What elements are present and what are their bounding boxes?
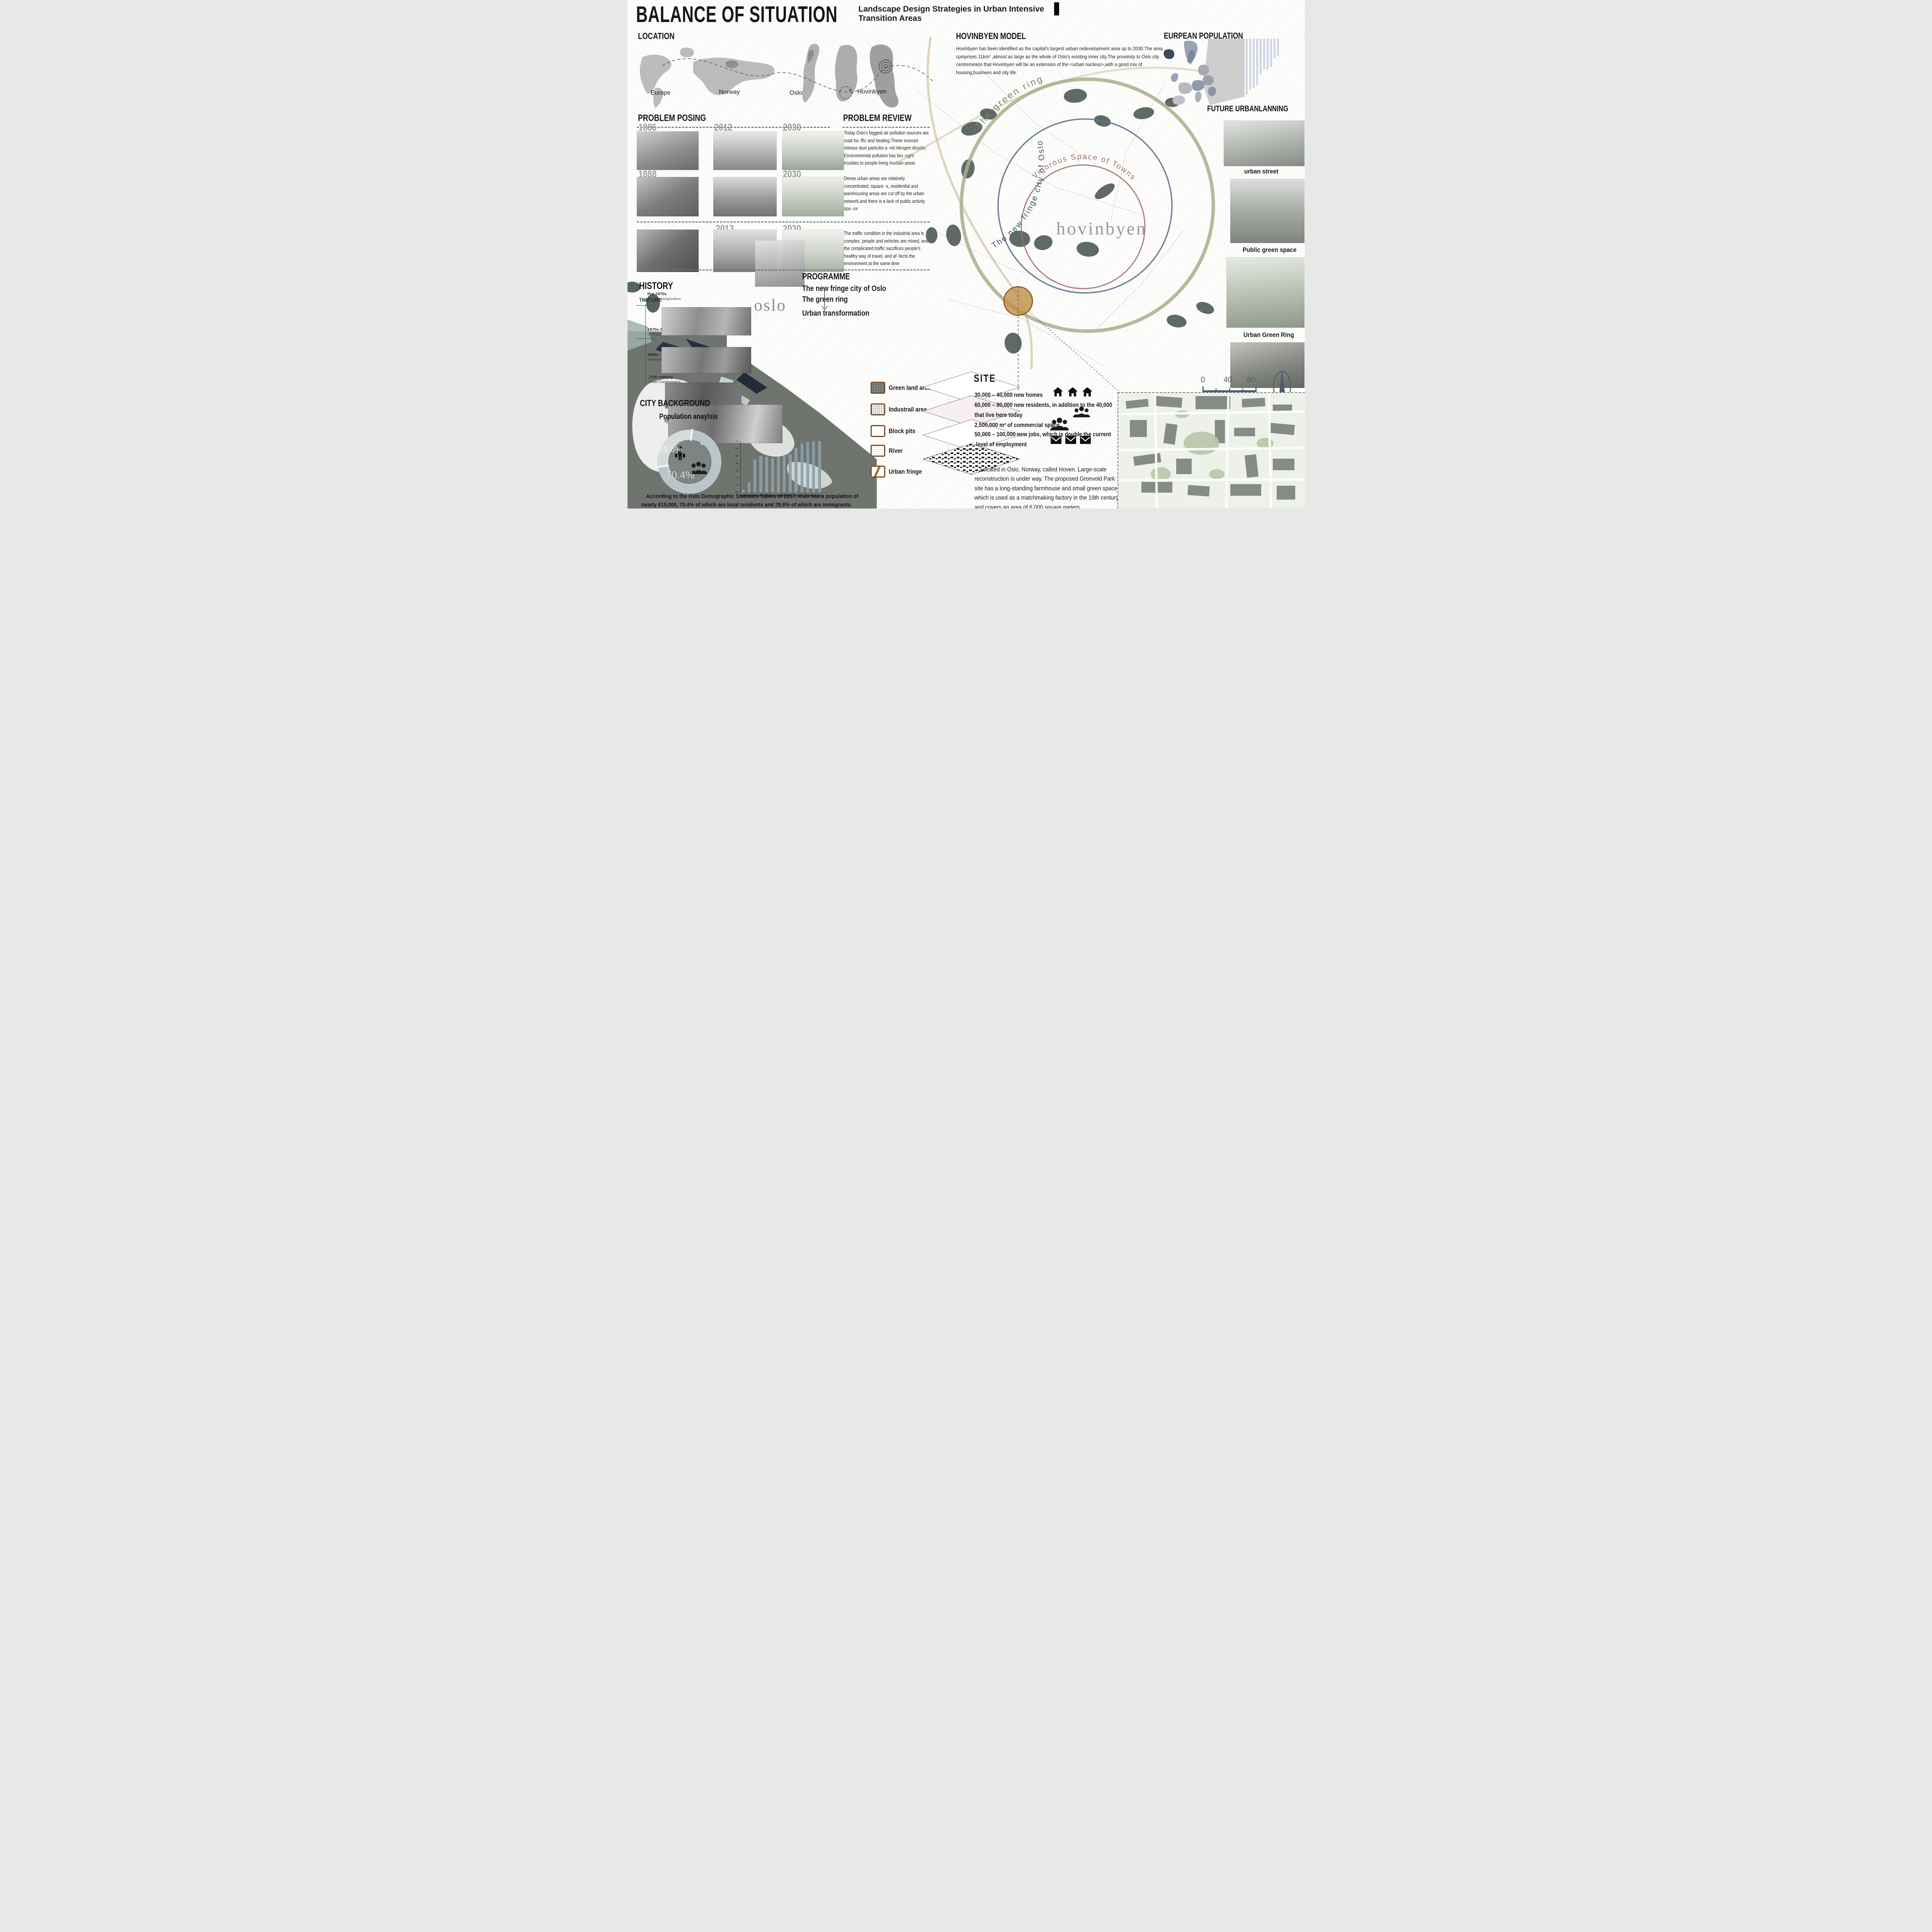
location-maps xyxy=(635,39,933,112)
oslo-marker-dot xyxy=(849,89,850,91)
timeline-entry: Pre-1970s Navigation&Agriculture xyxy=(648,292,681,301)
population-bar xyxy=(753,459,757,492)
europe-population-bar xyxy=(1246,39,1248,95)
legend-swatch-industrial xyxy=(871,403,885,415)
europe-population-bar xyxy=(1253,39,1255,88)
population-axis-tick: 3 xyxy=(735,469,738,471)
site-plan-map xyxy=(1117,392,1305,509)
photo-street-scene xyxy=(713,177,777,216)
population-analysis-subheading: Population anaylsis xyxy=(659,413,718,421)
europe-population-bar xyxy=(1274,39,1276,58)
population-bar xyxy=(789,454,792,492)
timeline-axis xyxy=(645,304,646,383)
divider xyxy=(637,221,930,223)
legend-swatch-green-land xyxy=(871,382,885,394)
residents-percent-label: 70.4% xyxy=(666,469,695,481)
fringe-city-circle xyxy=(998,119,1172,293)
oslo-map-label: oslo xyxy=(754,296,787,315)
urban-street-label: urban street xyxy=(1244,168,1278,175)
population-bar-chart-yticks: 01234567 xyxy=(736,441,740,492)
scale-tick-80: 80 xyxy=(1247,376,1255,384)
population-bar-chart-bars xyxy=(742,441,827,492)
urban-green-ring-label: Urban Green Ring xyxy=(1243,331,1294,339)
city-background-caption-1: According to the Oslo Demographic Statis… xyxy=(646,493,858,500)
population-bar xyxy=(783,456,786,492)
europe-population-bar xyxy=(1267,39,1269,70)
site-stat-residents-2: that live here today xyxy=(975,412,1022,419)
site-heading: SITE xyxy=(974,372,996,384)
population-bar xyxy=(818,441,821,492)
population-donut-chart xyxy=(651,423,728,500)
timeline-period: 21th century xyxy=(649,375,681,380)
location-label-hovinbyen: Hovinbyen xyxy=(857,88,887,95)
programme-heading: PROGRAMME xyxy=(802,271,850,282)
people-group-icons xyxy=(1049,406,1099,433)
scale-tick-0: 0 xyxy=(1201,376,1205,384)
legend-label-block-pits: Block pits xyxy=(889,427,915,435)
europe-population-bar xyxy=(1249,39,1251,90)
location-label-europe: Europe xyxy=(651,90,671,97)
history-heading: HISTORY xyxy=(639,281,673,292)
population-bar xyxy=(806,442,810,492)
house-icons xyxy=(1053,386,1095,398)
europe-population-bar xyxy=(1263,39,1265,70)
city-background-caption-2: nearly 615,000, 70.4% of which are local… xyxy=(641,502,852,508)
world-map xyxy=(639,48,774,108)
iceland-shape xyxy=(1163,49,1174,59)
legend-swatch-river xyxy=(871,445,885,457)
envelope-icons xyxy=(1051,436,1093,445)
population-axis-tick: 4 xyxy=(735,462,738,464)
svg-text:Vigorous Space of Towns: Vigorous Space of Towns xyxy=(1031,152,1138,182)
photo-2030-render xyxy=(782,131,844,170)
poster-board: BALANCE OF SITUATION Landscape Design St… xyxy=(628,0,1305,509)
population-bar xyxy=(771,458,774,492)
population-bar xyxy=(801,444,804,492)
population-axis-tick: 2 xyxy=(735,477,738,479)
page-subtitle-line2: Transition Areas xyxy=(859,14,1044,23)
divider xyxy=(637,269,930,270)
timeline-label: Navigation&Agriculture xyxy=(648,297,681,301)
legend-label-urban-fringe: Urban fringe xyxy=(889,468,922,476)
page-title: BALANCE OF SITUATION xyxy=(636,2,838,27)
population-axis-tick: 7 xyxy=(735,440,738,442)
oslo-region-map xyxy=(835,45,857,102)
site-stat-jobs-2: level of employment xyxy=(976,441,1027,448)
timeline-photo-oil xyxy=(662,347,751,373)
europe-population-bar xyxy=(1256,39,1258,85)
location-label-norway: Norway xyxy=(719,89,740,96)
europe-choropleth-map xyxy=(1163,39,1245,108)
europe-population-bar-chart xyxy=(1246,39,1296,102)
photo-public-green-space xyxy=(1226,257,1304,328)
photo-2012-flood xyxy=(713,131,777,170)
immigrants-percent-label: 29.6% xyxy=(659,445,682,454)
europe-population-bar xyxy=(1270,39,1272,67)
population-bar xyxy=(742,490,745,492)
timeline-period: Pre-1970s xyxy=(648,292,681,297)
photo-urban-street-aerial xyxy=(1230,179,1304,243)
public-green-space-label: Public green space xyxy=(1243,246,1296,254)
site-stat-commercial: 2,500,000 m² of commercial space xyxy=(975,422,1060,429)
population-axis-tick: 0 xyxy=(735,491,738,493)
corner-deco-bar xyxy=(1054,2,1059,15)
photo-1886-landscape xyxy=(637,131,699,170)
population-bar xyxy=(748,482,751,492)
timeline-photo-farming xyxy=(662,307,751,335)
timeline-tick xyxy=(636,338,656,339)
photo-cyclists xyxy=(755,240,804,287)
page-subtitle-line1: Landscape Design Strategies in Urban Int… xyxy=(859,5,1044,14)
legend-swatch-urban-fringe xyxy=(871,466,885,478)
hovinbyen-model-body: Hovinbyen has been identified as the cap… xyxy=(956,45,1176,77)
population-bar xyxy=(812,441,815,492)
population-axis-tick: 5 xyxy=(735,455,738,457)
population-bar xyxy=(794,448,798,492)
legend-swatch-block-pits xyxy=(871,425,885,437)
photo-future-urban-render xyxy=(1224,121,1304,166)
timeline-tick xyxy=(636,305,656,306)
site-description: Located in Oslo, Norway, called Hoven. L… xyxy=(975,465,1119,509)
hovinbyen-model-heading: HOVINBYEN MODEL xyxy=(956,31,1026,41)
site-stat-homes: 30,000 – 40,000 new homes xyxy=(975,392,1043,399)
photo-fjord xyxy=(637,230,699,272)
population-axis-tick: 1 xyxy=(735,484,738,486)
europe-population-bar xyxy=(1260,39,1262,74)
population-axis-tick: 6 xyxy=(735,447,738,449)
legend-label-river: River xyxy=(889,447,903,455)
hovinbyen-area-label: hovinbyen xyxy=(1056,219,1146,239)
population-bar xyxy=(777,457,780,492)
photo-1888-valley xyxy=(637,177,699,216)
europe-population-bar xyxy=(1277,39,1279,56)
population-bar xyxy=(765,457,768,492)
city-background-heading: CITY BACKGROUND xyxy=(640,398,710,408)
scale-tick-40: 40 xyxy=(1224,376,1232,384)
vigorous-space-label: Vigorous Space of Towns xyxy=(1031,152,1138,182)
population-bar xyxy=(759,456,762,492)
photo-2030-plaza-render xyxy=(782,177,844,216)
location-label-oslo: Oslo xyxy=(789,90,802,97)
future-urbanplanning-heading: FUTURE URBANLANNING xyxy=(1207,104,1288,114)
